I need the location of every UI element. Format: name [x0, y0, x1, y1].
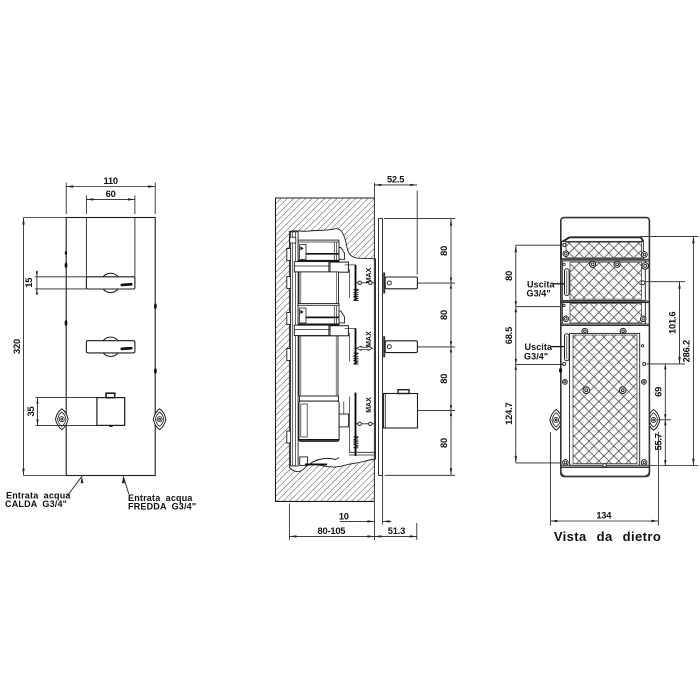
svg-text:CALDA G3/4": CALDA G3/4"	[5, 499, 67, 509]
svg-text:320: 320	[12, 339, 22, 354]
svg-text:35: 35	[26, 407, 36, 417]
svg-text:MIN: MIN	[353, 352, 360, 365]
svg-text:52.5: 52.5	[387, 174, 404, 184]
svg-text:G3/4": G3/4"	[524, 352, 548, 362]
svg-text:124.7: 124.7	[504, 403, 514, 425]
svg-text:69: 69	[654, 387, 664, 397]
svg-text:FREDDA G3/4": FREDDA G3/4"	[128, 501, 196, 511]
svg-text:80: 80	[439, 310, 449, 320]
svg-text:G3/4": G3/4"	[527, 289, 551, 299]
svg-text:MAX: MAX	[366, 331, 373, 347]
svg-text:60: 60	[106, 189, 116, 199]
svg-text:10: 10	[339, 511, 349, 521]
svg-text:51.3: 51.3	[388, 526, 405, 536]
svg-text:15: 15	[24, 278, 34, 288]
svg-text:286.2: 286.2	[682, 340, 692, 362]
svg-text:MIN: MIN	[353, 436, 360, 449]
svg-text:134: 134	[596, 510, 612, 520]
svg-text:80: 80	[439, 374, 449, 384]
svg-text:MAX: MAX	[366, 397, 373, 413]
svg-text:Vista da dietro: Vista da dietro	[554, 529, 661, 544]
svg-text:MIN: MIN	[353, 289, 360, 302]
svg-text:68.5: 68.5	[504, 327, 514, 344]
svg-text:80: 80	[504, 271, 514, 281]
svg-text:80-105: 80-105	[318, 526, 346, 536]
svg-text:80: 80	[439, 246, 449, 256]
svg-text:110: 110	[103, 176, 117, 186]
svg-text:80: 80	[439, 438, 449, 448]
svg-text:101.6: 101.6	[668, 312, 678, 334]
